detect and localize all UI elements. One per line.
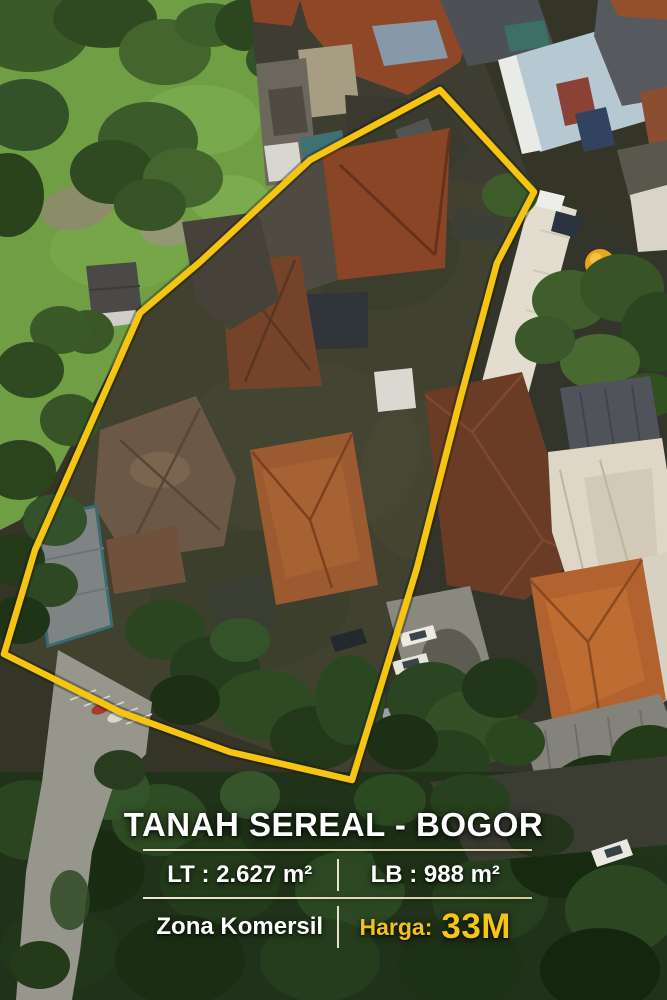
divider-line-top [143,849,532,851]
price-label: Harga: [360,914,433,941]
building-area-value: LB : 988 m² [339,856,533,894]
divider-line-bottom [143,897,532,899]
area-row: LT : 2.627 m² LB : 988 m² [143,856,532,894]
zone-value: Zona Komersil [143,903,337,951]
listing-title: TANAH SEREAL - BOGOR [0,808,667,841]
zone-price-row: Zona Komersil Harga: 33M [143,903,532,951]
property-listing-flyer: TANAH SEREAL - BOGOR LT : 2.627 m² LB : … [0,0,667,1000]
land-area-value: LT : 2.627 m² [143,856,337,894]
listing-info-overlay: TANAH SEREAL - BOGOR LT : 2.627 m² LB : … [0,0,667,1000]
price-group: Harga: 33M [339,903,533,951]
price-value: 33M [441,907,511,947]
